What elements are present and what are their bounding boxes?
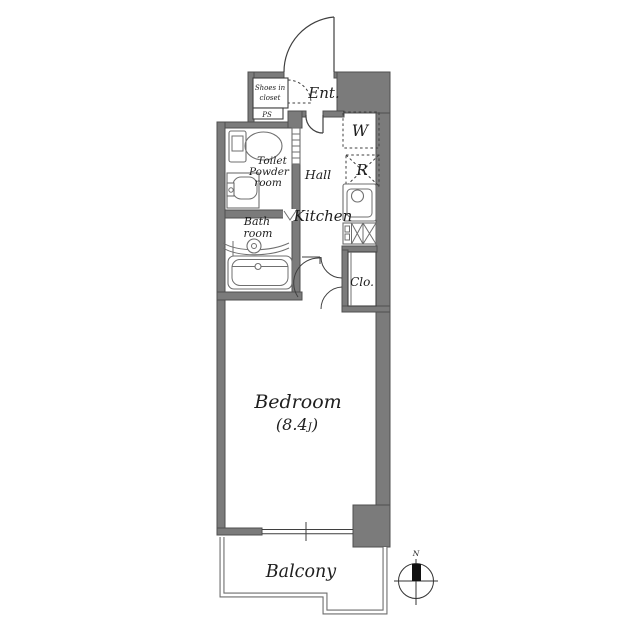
wall	[217, 292, 302, 300]
shoes-closet-label: Shoes in	[255, 84, 286, 92]
shoes-closet-label: closet	[260, 94, 281, 102]
compass-icon	[394, 559, 438, 605]
kitchen-label: Kitchen	[293, 207, 353, 225]
toilet-room-label: room	[254, 177, 282, 189]
floorplan-svg: Shoes in closet PS Ent. W R Hall Kitchen…	[0, 0, 640, 639]
compass-north-label: N	[412, 549, 420, 558]
powder-sliding-door-icon	[292, 128, 300, 164]
wall	[342, 250, 348, 312]
hall-door-arc	[306, 115, 323, 133]
washer-label: W	[352, 121, 370, 140]
fridge-label: R	[355, 161, 367, 179]
hall-label: Hall	[304, 167, 331, 182]
bedroom-size-open: (8.4	[276, 415, 308, 434]
bedroom-size-label: (8.4J)	[276, 415, 318, 434]
compass-needle	[412, 564, 421, 581]
bedroom-label: Bedroom	[253, 391, 341, 413]
entrance-door-arc	[284, 17, 334, 72]
bathtub-icon	[228, 256, 292, 289]
stove-icon	[343, 223, 376, 244]
pillar	[353, 505, 390, 547]
wall	[342, 306, 390, 312]
wall	[217, 122, 225, 535]
balcony-label: Balcony	[265, 562, 337, 582]
ps-label: PS	[261, 111, 272, 119]
bedroom-size-close: )	[311, 415, 318, 434]
wall	[217, 528, 262, 535]
bedroom-double-door-icon	[294, 257, 342, 309]
window	[262, 522, 353, 541]
labels: Shoes in closet PS Ent. W R Hall Kitchen…	[243, 84, 420, 582]
wall	[337, 72, 390, 113]
wall	[323, 111, 344, 117]
wall	[288, 111, 302, 128]
wall	[292, 164, 300, 300]
entrance-label: Ent.	[307, 84, 339, 102]
closet-label: Clo.	[350, 275, 374, 289]
floorplan-canvas: Shoes in closet PS Ent. W R Hall Kitchen…	[0, 0, 640, 639]
shoes-closet-box	[253, 78, 288, 108]
bath-room-label: room	[244, 227, 273, 240]
